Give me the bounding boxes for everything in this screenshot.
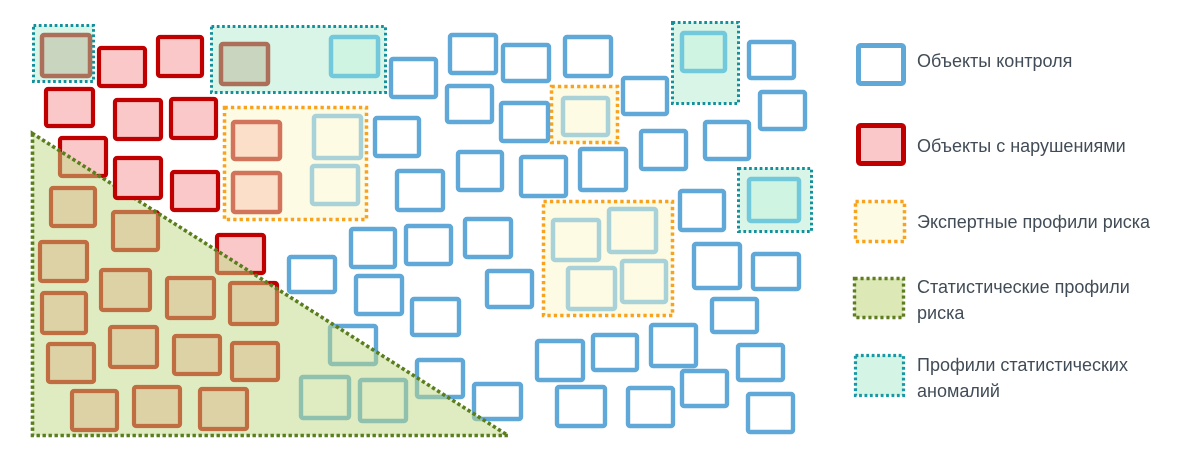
svg-text:аномалий: аномалий [917, 381, 1000, 401]
svg-text:Экспертные профили риска: Экспертные профили риска [917, 212, 1151, 232]
svg-text:Объекты с нарушениями: Объекты с нарушениями [917, 136, 1126, 156]
svg-text:Статистические профили: Статистические профили [917, 277, 1130, 297]
svg-text:Профили статистических: Профили статистических [917, 355, 1128, 375]
svg-text:Объекты контроля: Объекты контроля [917, 51, 1072, 71]
svg-text:риска: риска [917, 303, 965, 323]
